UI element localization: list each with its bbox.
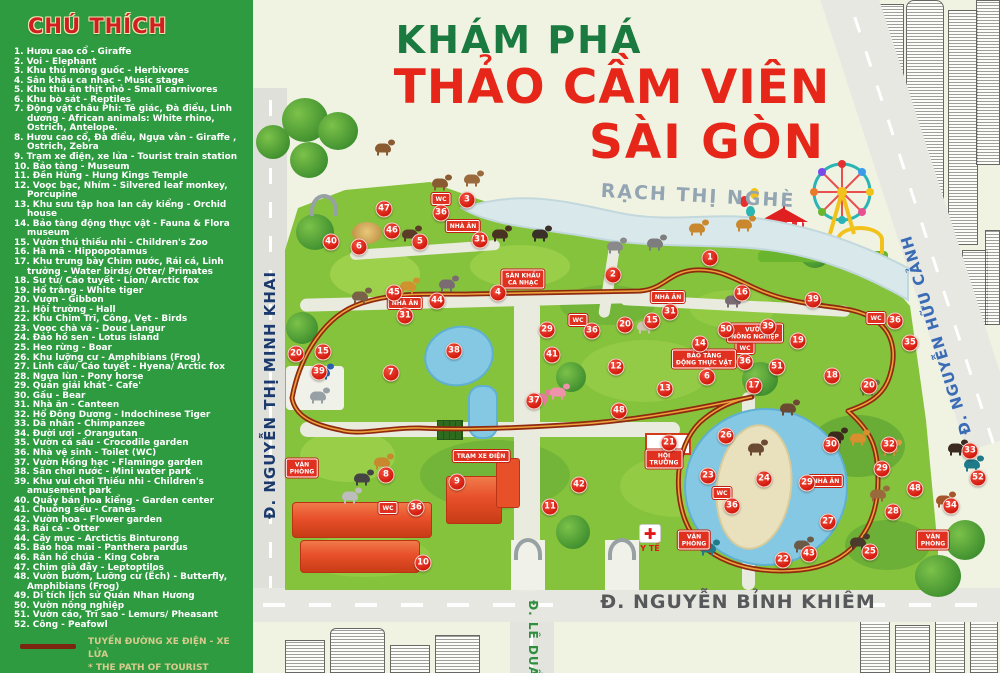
- legend-title: CHÚ THÍCH: [28, 14, 247, 38]
- legend-list: 1. Hươu cao cổ - Giraffe2. Voi - Elephan…: [14, 48, 247, 630]
- map-marker-1: 1: [702, 250, 719, 267]
- city-building: [895, 625, 930, 673]
- peacock-icon: [964, 460, 980, 469]
- medical-station: ✚ Y TẾ: [637, 524, 663, 553]
- map-marker-32: 32: [881, 437, 898, 454]
- train-path-line-icon: [20, 644, 76, 649]
- map-marker-51: 51: [769, 359, 786, 376]
- street-label-nguyen-thi-minh-khai: Đ. NGUYỄN THỊ MINH KHAI: [261, 271, 279, 519]
- tree-icon: [286, 312, 318, 344]
- map-marker-38: 38: [446, 343, 463, 360]
- map-marker-37: 37: [526, 393, 543, 410]
- map-marker-4: 4: [490, 285, 507, 302]
- map-marker-23: 23: [700, 468, 717, 485]
- map-sign: WC: [568, 314, 587, 326]
- map-marker-20: 20: [288, 346, 305, 363]
- city-building: [860, 618, 890, 673]
- city-building: [435, 635, 480, 673]
- legend-item-13: 13. Khu sưu tập hoa lan cây kiểng - Orch…: [14, 201, 247, 220]
- temple-tower: [496, 458, 520, 508]
- map-marker-36: 36: [737, 354, 754, 371]
- map-marker-36: 36: [433, 205, 450, 222]
- giraffe-icon: [689, 224, 705, 233]
- map-marker-15: 15: [315, 344, 332, 361]
- map-marker-22: 22: [775, 552, 792, 569]
- city-building: [976, 0, 1000, 165]
- ferris-wheel-icon: [806, 158, 878, 238]
- map-marker-8: 8: [378, 467, 395, 484]
- city-building: [970, 620, 998, 673]
- legend-item-17: 17. Khu trưng bày Chim nước, Rái cá, Lin…: [14, 258, 247, 277]
- map-marker-2: 2: [605, 267, 622, 284]
- map-marker-15: 15: [644, 313, 661, 330]
- map-sign: WC: [866, 312, 885, 324]
- map-marker-10: 10: [415, 555, 432, 572]
- street-label-le-duan: Đ. LÊ DUẨN: [526, 600, 540, 673]
- map-marker-21: 21: [661, 435, 678, 452]
- deer-icon: [870, 490, 886, 499]
- map-marker-31: 31: [472, 232, 489, 249]
- giraffe-icon: [374, 458, 390, 467]
- elephant-icon: [607, 242, 623, 251]
- leopard-icon: [400, 282, 416, 291]
- elephant-icon: [647, 239, 663, 248]
- map-marker-30: 30: [823, 437, 840, 454]
- map-sign: NHÀ ĂN: [446, 220, 480, 232]
- legend-item-52: 52. Công - Peafowl: [14, 621, 247, 631]
- map-marker-19: 19: [790, 333, 807, 350]
- map-marker-41: 41: [544, 347, 561, 364]
- legend-sidebar: CHÚ THÍCH 1. Hươu cao cổ - Giraffe2. Voi…: [0, 0, 253, 673]
- map-sign: VĂN PHÒNG: [678, 531, 710, 550]
- map-marker-46: 46: [384, 223, 401, 240]
- tree-icon: [256, 125, 290, 159]
- map-marker-52: 52: [970, 470, 987, 487]
- map-marker-24: 24: [756, 471, 773, 488]
- legend-item-39: 39. Khu vui chơi Thiếu nhi - Children's …: [14, 478, 247, 497]
- map-marker-33: 33: [962, 443, 979, 460]
- map-marker-6: 6: [351, 239, 368, 256]
- train-path-legend: TUYẾN ĐƯỜNG XE ĐIỆN - XE LỬA * THE PATH …: [20, 636, 240, 673]
- tree-icon: [556, 515, 590, 549]
- city-building: [330, 628, 385, 673]
- map-marker-48: 48: [611, 403, 628, 420]
- map-marker-50: 50: [718, 322, 735, 339]
- map-sign: WC: [378, 502, 397, 514]
- map-marker-34: 34: [943, 498, 960, 515]
- city-building: [985, 230, 1000, 325]
- monkey-icon: [748, 444, 764, 453]
- wildebeest-icon: [532, 230, 548, 239]
- road-dash-line: [263, 603, 553, 607]
- tiger-icon: [850, 434, 866, 443]
- map-sign: TRẠM XE ĐIỆN: [453, 450, 510, 462]
- map-marker-14: 14: [692, 336, 709, 353]
- museum-building: [300, 540, 420, 573]
- hyena-icon: [352, 292, 368, 301]
- map-sign: WC: [735, 342, 754, 354]
- map-marker-12: 12: [608, 359, 625, 376]
- legend-item-8: 8. Hươu cao cổ, Đà điểu, Ngựa vằn - Gira…: [14, 134, 247, 153]
- map-marker-29: 29: [799, 475, 816, 492]
- tree-icon: [945, 520, 985, 560]
- city-building: [285, 640, 325, 673]
- map-sign: SÂN KHẤU CA NHẠC: [501, 270, 544, 289]
- monkey-icon: [780, 404, 796, 413]
- map-marker-18: 18: [824, 368, 841, 385]
- map-marker-39: 39: [805, 292, 822, 309]
- map-marker-44: 44: [429, 293, 446, 310]
- page-title-line3: SÀI GÒN: [589, 115, 825, 170]
- tree-icon: [915, 555, 961, 597]
- legend-item-14: 14. Bảo tàng động thực vật - Fauna & Flo…: [14, 220, 247, 239]
- map-marker-42: 42: [571, 477, 588, 494]
- map-sign: VĂN PHÒNG: [917, 531, 949, 550]
- map-sign: VĂN PHÒNG: [286, 459, 318, 478]
- map-marker-36: 36: [724, 498, 741, 515]
- map-marker-36: 36: [408, 500, 425, 517]
- map-marker-6: 6: [699, 369, 716, 386]
- map-marker-48: 48: [907, 481, 924, 498]
- legend-item-48: 48. Vườn bướm, Lưỡng cư (Ếch) - Butterfl…: [14, 573, 247, 592]
- map-marker-13: 13: [657, 381, 674, 398]
- ostrich-icon: [354, 474, 370, 483]
- hedge-maze: [437, 420, 463, 440]
- train-legend-text-en: * THE PATH OF TOURIST TRAINS: [88, 662, 240, 673]
- map-marker-17: 17: [746, 378, 763, 395]
- city-building: [390, 645, 430, 673]
- map-marker-43: 43: [801, 546, 818, 563]
- map-marker-39: 39: [760, 319, 777, 336]
- deer-icon: [432, 179, 448, 188]
- river-label: RẠCH THỊ NGHÈ: [600, 180, 796, 212]
- map-sign: WC: [431, 193, 450, 205]
- map-marker-47: 47: [376, 201, 393, 218]
- zoo-map-page: ✚ Y TẾ NHÀ ĂNNHÀ ĂNNHÀ ĂNNHÀ ĂNWCWCWCWCW…: [0, 0, 1000, 673]
- hippo-icon: [439, 280, 455, 289]
- map-sign: BẢO TÀNG ĐỘNG THỰC VẬT: [672, 350, 736, 369]
- train-legend-text-vi: TUYẾN ĐƯỜNG XE ĐIỆN - XE LỬA: [88, 636, 240, 662]
- city-building: [948, 10, 978, 245]
- map-marker-5: 5: [412, 234, 429, 251]
- map-marker-29: 29: [539, 322, 556, 339]
- legend-item-7: 7. Động vật châu Phi: Tê giác, Đà điểu, …: [14, 105, 247, 134]
- street-label-nguyen-binh-khiem: Đ. NGUYỄN BỈNH KHIÊM: [600, 591, 875, 613]
- map-marker-31: 31: [397, 308, 414, 325]
- road-dash-line: [863, 603, 993, 607]
- rhino-icon: [310, 392, 326, 401]
- map-marker-16: 16: [734, 285, 751, 302]
- small-pond: [468, 385, 498, 439]
- deer-icon: [375, 144, 391, 153]
- map-marker-11: 11: [542, 499, 559, 516]
- map-marker-20: 20: [617, 317, 634, 334]
- map-marker-31: 31: [662, 304, 679, 321]
- legend-item-12: 12. Voọc bạc, Nhím - Silvered leaf monke…: [14, 182, 247, 201]
- tree-icon: [318, 112, 358, 150]
- map-marker-35: 35: [902, 335, 919, 352]
- map-marker-25: 25: [862, 544, 879, 561]
- deer-icon: [464, 175, 480, 184]
- map-marker-9: 9: [449, 474, 466, 491]
- map-sign: NHÀ ĂN: [651, 291, 685, 303]
- page-title-line2: THẢO CẦM VIÊN: [394, 60, 830, 115]
- map-marker-36: 36: [887, 313, 904, 330]
- map-marker-3: 3: [459, 192, 476, 209]
- map-marker-45: 45: [386, 285, 403, 302]
- map-sign: HỘI TRƯỜNG: [646, 450, 683, 469]
- map-marker-7: 7: [383, 365, 400, 382]
- bear-icon: [492, 230, 508, 239]
- map-marker-27: 27: [820, 514, 837, 531]
- tree-icon: [290, 142, 328, 178]
- flamingo-icon: [550, 388, 566, 397]
- giraffe-icon: [736, 220, 752, 229]
- red-cross-icon: ✚: [639, 524, 661, 543]
- map-marker-39: 39: [311, 364, 328, 381]
- map-marker-36: 36: [584, 323, 601, 340]
- map-marker-26: 26: [718, 428, 735, 445]
- circus-tent-icon: [762, 222, 804, 246]
- page-title-line1: KHÁM PHÁ: [396, 18, 643, 62]
- medical-label: Y TẾ: [637, 544, 663, 553]
- map-marker-28: 28: [885, 504, 902, 521]
- zebra-icon: [342, 492, 358, 501]
- map-marker-29: 29: [874, 461, 891, 478]
- map-marker-40: 40: [323, 234, 340, 251]
- map-marker-20: 20: [861, 378, 878, 395]
